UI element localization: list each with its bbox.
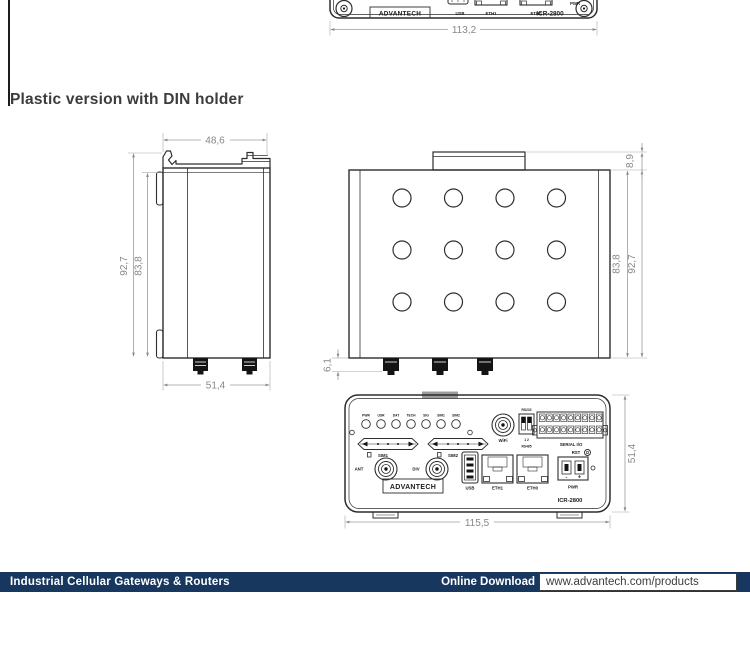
power-terminal xyxy=(558,457,595,480)
sim2-eject-icon xyxy=(438,453,442,458)
vent-holes xyxy=(393,189,566,311)
dim-51-4: 51,4 xyxy=(206,381,226,392)
pwr-terminal-label: PWR xyxy=(568,485,579,490)
led-dat-label: DAT xyxy=(393,414,400,418)
model-label: ICR-2800 xyxy=(536,11,564,18)
pwr-label: PWR xyxy=(570,1,581,6)
dip-switch-icon xyxy=(519,414,534,434)
antenna-connector-icon xyxy=(242,358,257,375)
led-sig-label: SIG xyxy=(423,414,429,418)
model-label: ICR-2800 xyxy=(558,498,583,504)
dim-115-5: 115,5 xyxy=(465,518,490,529)
dim-83-8-top: 83,8 xyxy=(612,254,623,274)
dimension-connector-depth: 6,1 xyxy=(323,350,383,381)
div-connector-icon xyxy=(426,458,448,480)
top-view-drawing: 8,9 83,8 92,7 6,1 xyxy=(325,130,670,392)
div-label: DIV xyxy=(412,467,419,472)
led-labels: PWR USR DAT TECH SIG SIM1 SIM2 xyxy=(362,414,460,418)
usb-label: USB xyxy=(455,11,464,16)
led-usr-label: USR xyxy=(378,414,386,418)
screw-icon xyxy=(468,430,473,435)
sim2-tray-icon xyxy=(428,439,488,450)
dimension-outer-height-top: 92,7 xyxy=(627,153,642,357)
screw-icon xyxy=(591,466,595,470)
minus-label: - xyxy=(566,475,568,481)
eth1-port-cut xyxy=(475,0,507,5)
eth0-port-cut xyxy=(520,0,552,5)
eth1-port xyxy=(482,455,513,483)
eth1-label: ETH1 xyxy=(486,11,498,16)
footer-category-title: Industrial Cellular Gateways & Routers xyxy=(10,572,230,592)
wifi-label: WiFi xyxy=(498,438,507,443)
advantech-logo: ADVANTECH xyxy=(370,7,430,18)
dim-92-7: 92,7 xyxy=(119,256,130,276)
status-leds xyxy=(362,420,461,429)
sim2-label: SIM2 xyxy=(448,453,459,458)
dim-83-8: 83,8 xyxy=(134,256,145,276)
dim-113-2: 113,2 xyxy=(452,25,477,36)
led-pwr-label: PWR xyxy=(362,414,370,418)
wifi-connector-icon xyxy=(492,414,514,436)
dim-92-7-top: 92,7 xyxy=(627,254,638,274)
usb-port-label: USB xyxy=(465,486,474,491)
antenna-connectors-bottom xyxy=(383,358,493,375)
section-title: Plastic version with DIN holder xyxy=(10,91,244,109)
dip-numbers-label: 1 2 xyxy=(524,438,529,442)
eth0-port-label: ETH0 xyxy=(527,486,539,491)
led-tech-label: TECH xyxy=(407,414,417,418)
side-view-drawing: 48,6 92,7 83,8 51,4 xyxy=(100,125,290,400)
dim-8-9: 8,9 xyxy=(625,154,636,168)
advantech-logo-text: ADVANTECH xyxy=(390,484,436,491)
device-body-top xyxy=(349,170,610,358)
device-body xyxy=(163,168,270,358)
dimension-panel-width: 115,5 xyxy=(345,516,610,529)
dimension-width-113: 113,2 xyxy=(330,21,597,36)
serial-io-label: SERIAL I/O xyxy=(560,442,583,447)
usb-port xyxy=(462,452,478,483)
din-rail-block xyxy=(433,152,525,170)
download-url-box: www.advantech.com/products xyxy=(539,573,737,591)
rs485-label: RS485 xyxy=(521,445,531,449)
led-sim2-label: SIM2 xyxy=(452,414,460,418)
dim-6-1: 6,1 xyxy=(323,358,334,372)
sim1-label: SIM1 xyxy=(378,453,389,458)
ant-connector-icon xyxy=(375,458,397,480)
rst-label: RST xyxy=(572,450,581,455)
serial-terminal-block xyxy=(533,412,608,438)
front-panel-drawing: PWR USR DAT TECH SIG SIM1 SIM2 SIM1 SIM2… xyxy=(330,385,670,543)
din-holder-clip xyxy=(163,151,270,168)
dim-51-4-panel: 51,4 xyxy=(627,443,638,463)
sim1-eject-icon xyxy=(368,453,372,458)
rs232-label: RS232 xyxy=(521,408,531,412)
reset-button-icon xyxy=(585,450,591,456)
datasheet-page: { "page": { "section_title": "Plastic ve… xyxy=(0,0,750,650)
dimension-outer-height: 92,7 xyxy=(119,153,162,356)
advantech-logo-text: ADVANTECH xyxy=(379,10,421,17)
dimension-inner-height: 83,8 xyxy=(134,173,163,357)
screw-icon xyxy=(350,430,355,435)
metal-version-front-panel-drawing: ADVANTECH USB ETH1 ETH0 PWR ICR-2800 113… xyxy=(320,0,610,44)
online-download-label: Online Download xyxy=(441,572,535,592)
sim1-tray-icon xyxy=(358,439,418,450)
eth0-port xyxy=(517,455,548,483)
ant-label: ANT xyxy=(355,467,364,472)
eth1-port-label: ETH1 xyxy=(492,486,504,491)
dimension-panel-height: 51,4 xyxy=(612,395,638,512)
advantech-logo: ADVANTECH xyxy=(383,479,443,493)
side-latch-bumps xyxy=(157,172,164,358)
led-sim1-label: SIM1 xyxy=(437,414,445,418)
antenna-connector-icon xyxy=(193,358,208,375)
usb-port-cut xyxy=(448,0,468,4)
dimension-din-depth: 8,9 xyxy=(525,143,647,179)
mounting-screw-left-icon xyxy=(336,1,352,17)
dim-48-6: 48,6 xyxy=(205,136,225,147)
